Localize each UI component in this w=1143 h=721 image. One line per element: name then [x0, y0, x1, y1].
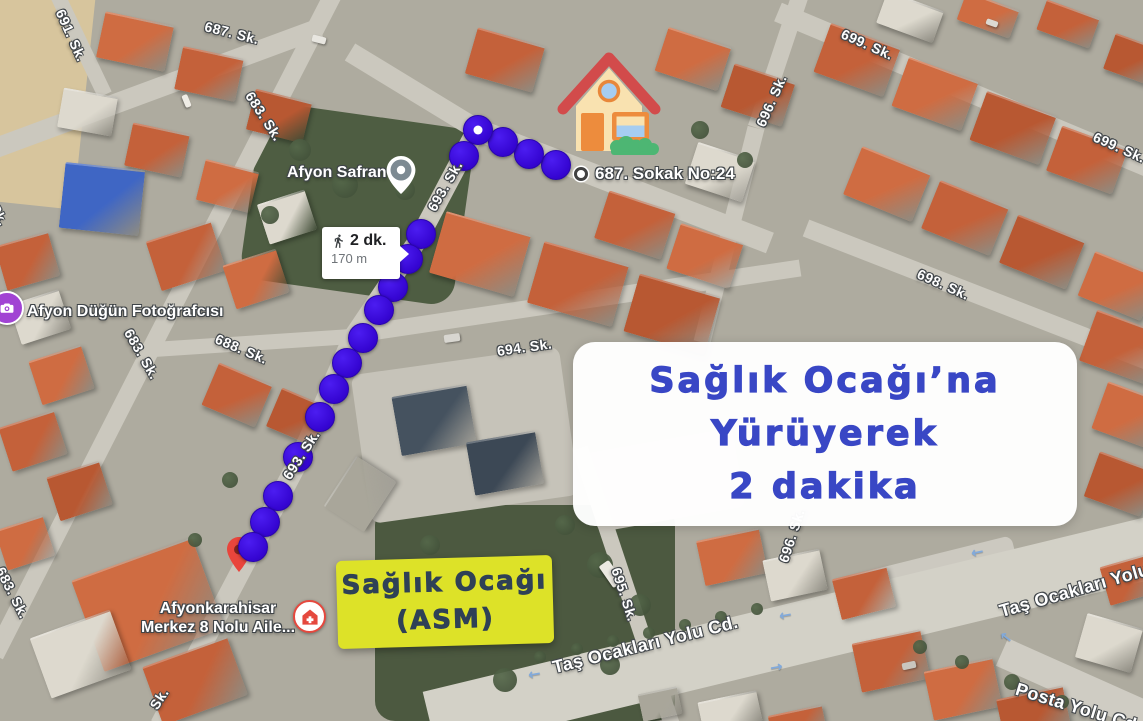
- building: [1046, 125, 1128, 194]
- tree: [555, 515, 575, 535]
- tree: [261, 206, 279, 224]
- destination-tag-line1: Sağlık Ocağı: [336, 562, 553, 605]
- tree: [493, 668, 517, 692]
- tree: [222, 472, 238, 488]
- poi-label-aile-sagligi: Afyonkarahisar Merkez 8 Nolu Aile...: [128, 599, 308, 637]
- building: [891, 57, 978, 131]
- destination-tag-line2: (ASM): [337, 599, 554, 642]
- tree: [913, 640, 927, 654]
- destination-tag: Sağlık Ocağı (ASM): [336, 555, 554, 649]
- poi-label-dugun-fotografcisi: Afyon Düğün Fotoğrafcısı: [27, 303, 223, 321]
- direction-arrow-icon: ←: [527, 664, 543, 684]
- building: [0, 231, 60, 290]
- building: [1084, 451, 1143, 517]
- tree: [691, 121, 709, 139]
- map-canvas[interactable]: 691. Sk. 687. Sk. 683. Sk. Sk. 693. Sk. …: [0, 0, 1143, 721]
- building: [969, 91, 1056, 165]
- direction-arrow-icon: →: [769, 657, 785, 677]
- building: [876, 0, 944, 43]
- tree: [420, 535, 440, 555]
- walk-time: 2 dk.: [350, 232, 386, 250]
- building: [465, 27, 546, 92]
- building: [762, 548, 827, 601]
- poi-label-line2: Merkez 8 Nolu Aile...: [128, 618, 308, 637]
- tree: [188, 533, 202, 547]
- walk-info-banner: Sağlık Ocağı’na Yürüyerek 2 dakika: [573, 342, 1077, 526]
- building: [655, 27, 732, 91]
- poi-label-sokak-no24: 687. Sokak No:24: [595, 164, 735, 184]
- poi-dot-icon: [574, 167, 588, 181]
- tree: [289, 139, 311, 161]
- walk-distance: 170 m: [331, 251, 400, 266]
- tree: [955, 655, 969, 669]
- banner-line2: Yürüyerek: [573, 409, 1077, 459]
- building: [0, 410, 68, 472]
- banner-line3: 2 dakika: [573, 462, 1077, 512]
- building: [1079, 310, 1143, 385]
- building: [696, 528, 768, 586]
- building: [201, 362, 272, 427]
- building: [1091, 381, 1143, 449]
- destination-pin-icon: [226, 537, 252, 578]
- building: [96, 11, 174, 72]
- poi-address[interactable]: 687. Sokak No:24: [574, 164, 735, 184]
- building: [768, 705, 828, 721]
- building: [921, 180, 1009, 256]
- walk-time-bubble[interactable]: 2 dk. 170 m: [322, 227, 400, 279]
- building: [1075, 613, 1143, 673]
- building: [843, 146, 931, 222]
- poi-label-line1: Afyonkarahisar: [128, 599, 308, 618]
- health-center-icon[interactable]: [293, 600, 326, 633]
- poi-label-afyon-safran: Afyon Safran: [287, 164, 387, 182]
- tree: [751, 603, 763, 615]
- building: [28, 345, 95, 406]
- building: [1077, 251, 1143, 321]
- building: [999, 214, 1085, 289]
- bubble-pointer: [400, 246, 409, 262]
- vehicle: [181, 94, 191, 108]
- walking-person-icon: [331, 232, 346, 250]
- building: [697, 690, 762, 721]
- house-icon: [556, 44, 662, 161]
- tree: [534, 651, 546, 663]
- location-marker-icon[interactable]: [385, 155, 417, 200]
- banner-line1: Sağlık Ocağı’na: [573, 356, 1077, 406]
- building: [1103, 33, 1143, 85]
- tree: [737, 152, 753, 168]
- vehicle: [444, 333, 461, 343]
- building: [59, 162, 145, 236]
- building: [1036, 0, 1100, 49]
- direction-arrow-icon: ←: [778, 605, 794, 625]
